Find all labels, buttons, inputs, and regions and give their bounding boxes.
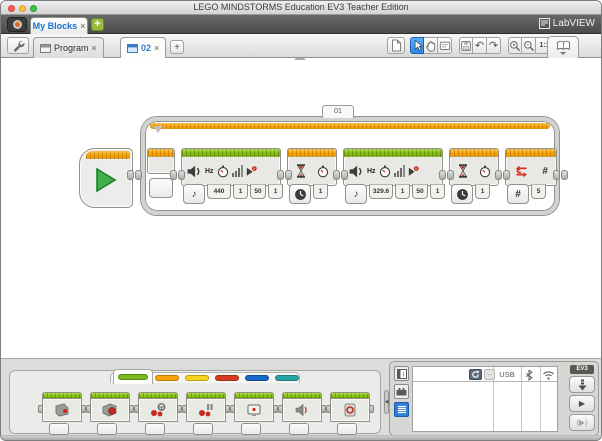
palette-block-mode-button xyxy=(193,423,213,435)
document-icon xyxy=(390,39,402,52)
port-view-button[interactable] xyxy=(394,384,409,399)
project-tab-my-blocks[interactable]: My Blocks × xyxy=(30,17,88,34)
palette-tabs xyxy=(110,372,300,383)
wrench-icon xyxy=(11,39,25,53)
comment-tool-button[interactable] xyxy=(438,37,452,54)
wait-seconds-value[interactable]: 1 xyxy=(313,184,328,199)
volume-value[interactable]: 50 xyxy=(412,184,428,199)
large-motor-icon xyxy=(90,398,130,422)
pointer-tool-group xyxy=(410,37,452,54)
close-myblock-tab-icon[interactable]: × xyxy=(154,43,159,53)
labview-logo: LabVIEW xyxy=(539,18,595,29)
close-project-icon[interactable]: × xyxy=(80,22,85,31)
sequence-wire-connector[interactable] xyxy=(553,170,568,180)
bottom-dock: ◀ i xyxy=(1,358,601,437)
volume-bars-icon xyxy=(232,165,243,177)
comment-icon xyxy=(439,40,451,52)
content-editor-tab[interactable] xyxy=(547,36,579,58)
loop-mode-button[interactable] xyxy=(149,178,173,198)
download-icon xyxy=(577,379,588,391)
palette-tab-pill xyxy=(118,374,148,380)
loop-exit-mode-button[interactable]: # xyxy=(507,184,529,204)
close-program-tab-icon[interactable]: × xyxy=(92,43,97,53)
port-view-icon xyxy=(396,387,407,396)
sound-mode-button[interactable]: ♪ xyxy=(345,184,367,204)
palette-block-large-motor[interactable] xyxy=(90,392,130,436)
run-selected-icon: (▶) xyxy=(576,418,587,427)
play-type-icon: 0 xyxy=(408,166,419,177)
select-tool-button[interactable] xyxy=(410,37,424,54)
wait-seconds-value[interactable]: 1 xyxy=(475,184,490,199)
bricks-table-header: ↔ USB xyxy=(413,367,557,382)
palette-tab-action[interactable] xyxy=(113,369,153,384)
available-bricks-table[interactable]: ↔ USB xyxy=(412,366,558,432)
hardware-side-tabs: i xyxy=(394,366,409,417)
loop-exit-block[interactable]: # # 5 xyxy=(505,148,557,186)
hourglass-icon xyxy=(457,164,469,178)
palette-block-move-tank[interactable] xyxy=(186,392,226,436)
sequence-wire-connector[interactable] xyxy=(333,170,348,180)
palette-block-display[interactable] xyxy=(234,392,274,436)
palette-block-mode-button xyxy=(49,423,69,435)
palette-block-mode-button xyxy=(337,423,357,435)
medium-motor-icon xyxy=(42,398,82,422)
hourglass-icon xyxy=(295,164,307,178)
hardware-page: i xyxy=(389,361,599,436)
wait-mode-button[interactable] xyxy=(289,184,311,204)
sequence-wire-connector[interactable] xyxy=(439,170,454,180)
tab-myblock-02[interactable]: 02 × xyxy=(120,37,166,58)
palette-block-mode-button xyxy=(97,423,117,435)
download-and-run-button[interactable]: ▶ xyxy=(569,395,595,412)
palette-tab-flow-control[interactable] xyxy=(155,375,179,381)
labview-logo-icon xyxy=(539,18,550,29)
sound-mode-button[interactable]: ♪ xyxy=(183,184,205,204)
available-bricks-button[interactable] xyxy=(394,402,409,417)
palette-tab-my-blocks[interactable] xyxy=(275,375,299,381)
wifi-icon xyxy=(542,370,555,380)
program-canvas[interactable]: 01 Hz xyxy=(1,58,601,358)
svg-text:0: 0 xyxy=(253,166,255,170)
loop-count-value[interactable]: 5 xyxy=(531,184,546,199)
time-stopwatch-icon xyxy=(317,165,329,178)
app-window: LEGO MINDSTORMS Education EV3 Teacher Ed… xyxy=(0,0,602,441)
zoom-in-button[interactable] xyxy=(508,37,522,54)
sequence-wire-connector[interactable] xyxy=(495,170,510,180)
palette-block-sound[interactable] xyxy=(282,392,322,436)
start-block[interactable] xyxy=(79,148,133,208)
wait-block-header xyxy=(288,149,336,157)
svg-text:0: 0 xyxy=(415,166,417,170)
sound-block-header xyxy=(344,149,442,157)
refresh-icon xyxy=(471,370,480,379)
brick-controls: EV3 ▶ (▶) xyxy=(568,365,596,431)
time-compare-icon xyxy=(456,188,469,201)
speaker-icon xyxy=(347,164,364,179)
run-icon: ▶ xyxy=(579,399,585,408)
titlebar: LEGO MINDSTORMS Education EV3 Teacher Ed… xyxy=(1,1,601,15)
zoom-out-icon xyxy=(523,40,535,52)
download-button[interactable] xyxy=(569,376,595,393)
play-type-value[interactable]: 1 xyxy=(430,184,445,199)
brick-info-icon: i xyxy=(397,369,407,379)
palette-block-mode-button xyxy=(289,423,309,435)
duration-value[interactable]: 1 xyxy=(233,184,248,199)
sound-block-1[interactable]: Hz 0 ♪ 440 1 xyxy=(181,148,281,186)
move-steering-icon xyxy=(138,398,178,422)
sound-icon xyxy=(282,398,322,422)
save-icon xyxy=(460,40,472,52)
play-type-value[interactable]: 1 xyxy=(268,184,283,199)
time-compare-icon xyxy=(294,188,307,201)
tools-button[interactable] xyxy=(7,37,29,54)
bluetooth-icon xyxy=(525,369,533,381)
palette-block-mode-button xyxy=(241,423,261,435)
window-title: LEGO MINDSTORMS Education EV3 Teacher Ed… xyxy=(1,2,601,12)
zoom-in-icon xyxy=(509,40,521,52)
undo-icon: ↶ xyxy=(475,39,484,52)
undo-button[interactable]: ↶ xyxy=(473,37,487,54)
file-edit-group: ↶ ↷ xyxy=(459,37,501,54)
add-project-button[interactable]: + xyxy=(91,18,104,31)
project-tab-bar: My Blocks × + LabVIEW xyxy=(1,15,601,34)
pan-tool-button[interactable] xyxy=(424,37,438,54)
frequency-value[interactable]: 440 xyxy=(207,184,231,199)
brick-info-button[interactable]: i xyxy=(394,366,409,381)
palette-block-move-steering[interactable] xyxy=(138,392,178,436)
palette-block-mode-button xyxy=(145,423,165,435)
loop-index-tab[interactable]: 01 xyxy=(322,105,354,118)
play-icon xyxy=(80,159,132,201)
play-type-icon: 0 xyxy=(246,166,257,177)
sequence-wire-connector[interactable] xyxy=(170,170,185,180)
volume-value[interactable]: 50 xyxy=(250,184,266,199)
run-selected-button[interactable]: (▶) xyxy=(569,414,595,431)
usb-column-label: USB xyxy=(493,370,521,379)
save-button[interactable] xyxy=(459,37,473,54)
volume-bars-icon xyxy=(394,165,405,177)
redo-icon: ↷ xyxy=(489,39,498,52)
book-icon xyxy=(556,40,571,51)
wait-block-header xyxy=(450,149,498,157)
loop-exit-header xyxy=(506,149,556,157)
loop-wire-arrow-icon xyxy=(153,126,163,133)
chevron-down-icon xyxy=(560,52,566,55)
wait-mode-button[interactable] xyxy=(451,184,473,204)
program-window-icon xyxy=(40,44,51,53)
loop-header-stripe xyxy=(150,123,550,129)
programming-palette xyxy=(9,370,381,434)
sequence-wire-connector[interactable] xyxy=(127,170,142,180)
duration-value[interactable]: 1 xyxy=(395,184,410,199)
brick-name-label: EV3 xyxy=(570,365,594,374)
time-stopwatch-icon xyxy=(479,165,491,178)
loop-start-header xyxy=(148,149,174,157)
duration-stopwatch-icon xyxy=(379,165,391,178)
myblock-window-icon xyxy=(127,44,138,53)
frequency-value[interactable]: 329.6 xyxy=(369,184,393,199)
lobby-icon xyxy=(13,20,22,29)
collapse-handle-icon[interactable] xyxy=(294,58,306,60)
loop-repeat-icon xyxy=(514,165,529,178)
palette-tab-data-operations[interactable] xyxy=(215,375,239,381)
zoom-out-button[interactable] xyxy=(522,37,536,54)
add-block-tab-button[interactable]: + xyxy=(170,40,184,54)
redo-button[interactable]: ↷ xyxy=(487,37,501,54)
palette-block-brick-status-light[interactable] xyxy=(330,392,370,436)
speaker-icon xyxy=(185,164,202,179)
brick-status-light-icon xyxy=(330,398,370,422)
sound-block-2[interactable]: Hz 0 ♪ 329.6 1 xyxy=(343,148,443,186)
start-block-header xyxy=(86,151,130,159)
new-document-button[interactable] xyxy=(387,37,405,54)
hand-icon xyxy=(425,39,436,52)
window-resize-edge[interactable] xyxy=(1,435,601,440)
brick-list-icon xyxy=(397,405,407,414)
move-tank-icon xyxy=(186,398,226,422)
duration-stopwatch-icon xyxy=(217,165,229,178)
lobby-button[interactable] xyxy=(7,17,27,32)
sequence-wire-connector[interactable] xyxy=(277,170,292,180)
palette-block-medium-motor[interactable] xyxy=(42,392,82,436)
refresh-button[interactable] xyxy=(469,369,482,380)
wait-block-2[interactable]: 1 xyxy=(449,148,499,186)
display-icon xyxy=(234,398,274,422)
toolbar: Program × 02 × + xyxy=(1,34,601,58)
palette-tab-sensor[interactable] xyxy=(185,375,209,381)
wait-block-1[interactable]: 1 xyxy=(287,148,337,186)
sound-block-header xyxy=(182,149,280,157)
cursor-icon xyxy=(412,39,423,52)
palette-tab-advanced[interactable] xyxy=(245,375,269,381)
tab-program[interactable]: Program × xyxy=(33,37,104,58)
